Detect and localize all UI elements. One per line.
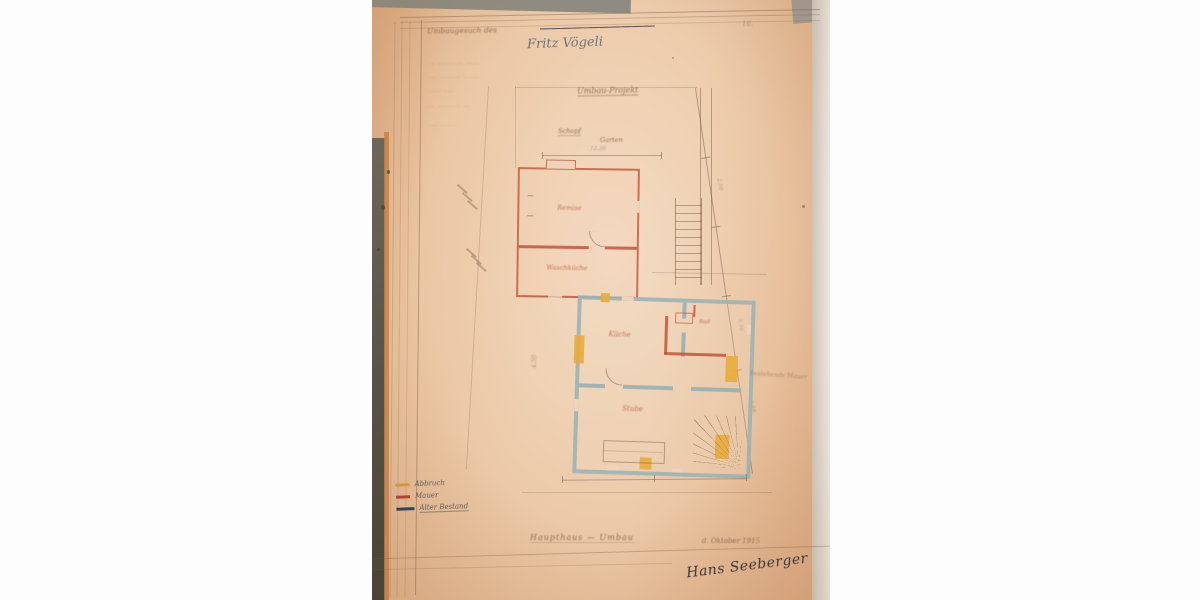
owner-name-handwriting: Fritz Vögeli	[527, 35, 603, 53]
door-opening	[606, 466, 618, 470]
shed-label: Schopf	[558, 127, 581, 136]
room-label: Waschküche	[546, 264, 587, 273]
demolition-patch	[601, 293, 610, 302]
ground-line	[522, 492, 772, 493]
room-label: Remise	[557, 204, 581, 212]
dim-tick	[661, 152, 662, 159]
retaining-hatch	[467, 200, 478, 210]
faded-text-line: ·· ········ ····	[428, 60, 480, 68]
legend: Abbruch Mauer Alter Bestand	[395, 475, 496, 514]
dim-tick	[654, 475, 655, 482]
room-label: Stube	[622, 405, 643, 414]
plan-photo: Umbaugesuch des ———— —————— Fritz Vögeli…	[372, 0, 830, 600]
legend-swatch-new-wall	[396, 495, 410, 498]
age-speck	[381, 205, 385, 210]
door-swing-arc	[589, 231, 605, 247]
fixture-outline	[675, 312, 693, 324]
demolition-patch	[725, 356, 738, 382]
interior-wall-existing	[691, 387, 741, 393]
top-dimension-label: 12.30	[590, 146, 606, 152]
lower-building-outline: Küche Bad Stube	[572, 295, 756, 479]
door-opening	[574, 399, 578, 411]
legend-label: Mauer	[415, 491, 439, 500]
dim-tick	[746, 474, 747, 481]
demolition-patch	[574, 335, 585, 363]
room-label: Küche	[609, 330, 631, 339]
paper-crease	[372, 563, 672, 570]
legend-swatch-existing	[396, 507, 414, 511]
dim-label-right: 2.10	[716, 178, 724, 191]
interior-wall-existing	[579, 383, 605, 388]
door-opening	[636, 201, 639, 213]
garden-label: Garten	[600, 136, 623, 144]
faded-text-line: ···· ···	[428, 88, 454, 96]
age-speck	[387, 170, 390, 174]
faded-text-line: ··· ······ ·····	[428, 74, 480, 82]
faded-text-line: ·· ······· ··	[428, 103, 470, 111]
winder-staircase	[693, 415, 743, 468]
table-background-top	[372, 0, 631, 13]
legend-label: Abbruch	[414, 479, 445, 488]
door-swing-arc	[605, 368, 623, 386]
sheet-stack-edge	[384, 132, 389, 600]
upper-building-outline: Remise Waschküche	[516, 167, 640, 299]
legend-row-existing: Alter Bestand	[396, 499, 496, 514]
footer-note-handwriting: Haupthaus — Umbau	[530, 533, 634, 543]
dim-tick	[562, 476, 563, 483]
door-opening	[622, 297, 634, 301]
page-mark: 18.	[742, 20, 753, 28]
request-line-handwriting: Umbaugesuch des	[427, 25, 497, 35]
paper-right-edge	[812, 0, 830, 600]
sheet-edge-line	[389, 22, 395, 597]
room-label: Bad	[699, 319, 710, 325]
chimney-stub	[546, 160, 576, 170]
legend-swatch-demolition	[396, 483, 410, 486]
wall-annotation: bestehende Mauer	[750, 370, 807, 381]
external-staircase	[675, 198, 702, 285]
age-speck	[672, 57, 674, 59]
interior-wall-new	[664, 316, 668, 354]
dim-tick	[722, 295, 731, 297]
dim-tick	[711, 226, 720, 228]
interior-wall	[605, 246, 637, 249]
dim-tick	[527, 215, 533, 216]
dim-tick	[528, 195, 534, 196]
faded-text-line: ··· ·····	[428, 122, 457, 130]
signature-handwriting: Hans Seeberger	[685, 551, 808, 582]
interior-wall-new	[693, 305, 695, 317]
dim-label-left: 4.50	[531, 355, 538, 368]
site-line-top	[515, 87, 697, 88]
top-dimension-line	[542, 155, 662, 156]
dim-tick	[542, 152, 543, 159]
interior-wall	[519, 245, 589, 248]
struck-out-handwriting: ———— ——————	[540, 21, 655, 34]
interior-wall-existing	[623, 385, 673, 391]
door-opening	[672, 468, 682, 472]
screenshot-stage: Umbaugesuch des ———— —————— Fritz Vögeli…	[0, 0, 1200, 600]
footer-date-handwriting: d. Oktober 1915	[702, 537, 760, 545]
age-speck	[377, 248, 380, 251]
boundary-left-slant	[466, 86, 489, 469]
interior-wall-new	[664, 352, 726, 357]
site-line-left-upper	[515, 86, 516, 168]
age-speck	[802, 205, 805, 208]
legend-label: Alter Bestand	[419, 502, 468, 513]
door-opening	[747, 325, 751, 335]
